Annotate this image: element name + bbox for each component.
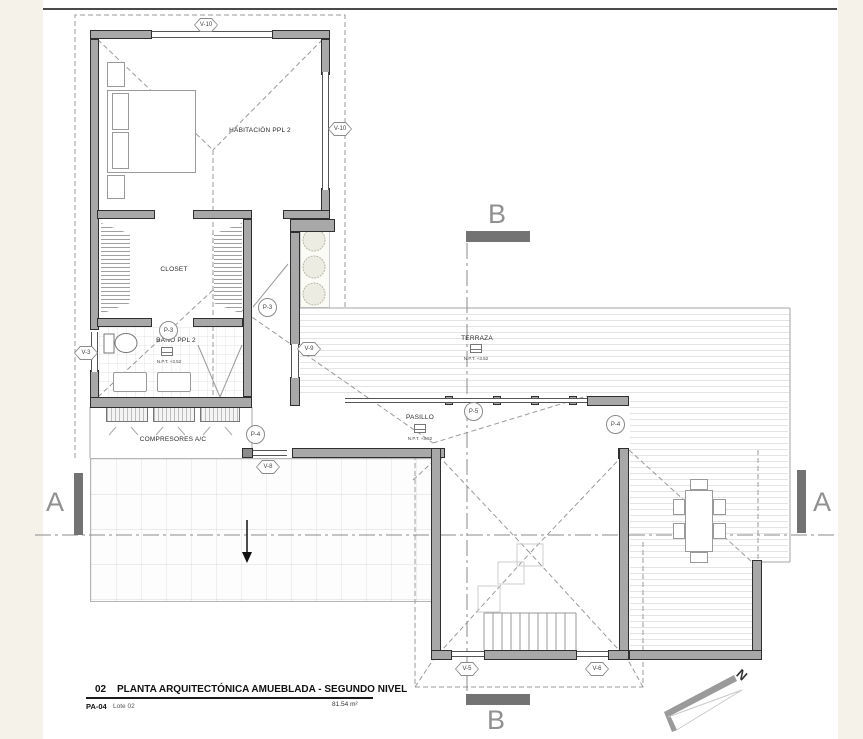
window-v10-right <box>322 72 329 190</box>
wall-segment <box>97 210 155 219</box>
section-b-bar-bottom <box>466 694 530 705</box>
window-v8 <box>253 450 287 456</box>
wall-segment <box>752 560 762 660</box>
wall-segment <box>97 318 152 327</box>
section-a-letter-right: A <box>813 487 831 518</box>
section-b-bar-top <box>466 231 530 242</box>
wall-segment <box>484 650 577 660</box>
sink <box>113 372 147 392</box>
corridor-glazing <box>345 398 587 403</box>
drawing-number: 02 <box>95 684 106 695</box>
roof-slope-arrow-icon <box>242 520 252 563</box>
ac-compressor-unit <box>200 407 240 422</box>
door-callout-p3-hall: P-3 <box>258 298 277 317</box>
wall-segment <box>290 219 335 232</box>
wall-segment <box>431 448 441 660</box>
sheet-number: PA-04 <box>86 702 107 711</box>
lot-label: Lote 02 <box>113 703 135 710</box>
level-marker-bano <box>161 347 173 356</box>
room-label-pasillo: PASILLO <box>390 414 450 421</box>
section-b-letter-top: B <box>488 199 506 230</box>
floor-plan-sheet: HABITACIÓN PPL 2 CLOSET BAÑO PPL 2 N.P.T… <box>0 0 863 739</box>
room-label-terraza: TERRAZA <box>442 335 512 342</box>
room-label-habitacion: HABITACIÓN PPL 2 <box>215 127 305 134</box>
dining-table <box>685 490 713 552</box>
level-text-bano: N.P.T. +3.52 <box>144 359 194 364</box>
wall-segment <box>290 232 300 345</box>
dining-chair <box>690 552 708 563</box>
wall-segment <box>193 210 252 219</box>
door-callout-p5: P-5 <box>464 402 483 421</box>
wall-segment <box>321 39 330 75</box>
wardrobe <box>214 223 242 314</box>
section-a-bar-left <box>74 473 83 535</box>
wall-segment <box>193 318 243 327</box>
pillow <box>112 132 129 169</box>
north-arrow-icon: N <box>650 658 770 738</box>
wardrobe <box>101 223 130 314</box>
dining-chair <box>690 479 708 490</box>
wall-segment <box>90 39 99 330</box>
door-callout-p4-right: P-4 <box>606 415 625 434</box>
room-label-compresores: COMPRESORES A/C <box>123 436 223 443</box>
dining-chair <box>673 523 685 539</box>
window-v6 <box>577 651 608 657</box>
level-marker-pasillo <box>414 424 426 433</box>
nightstand <box>107 62 125 87</box>
stairs <box>484 613 576 650</box>
pillow <box>112 93 129 130</box>
wall-segment <box>243 219 252 397</box>
ac-compressor-unit <box>106 407 148 422</box>
dining-chair <box>713 523 726 539</box>
nightstand <box>107 175 125 199</box>
section-a-bar-right <box>797 470 806 533</box>
ac-airflow-ticks <box>109 427 232 435</box>
drawing-title: PLANTA ARQUITECTÓNICA AMUEBLADA - SEGUND… <box>117 684 407 695</box>
wall-segment <box>90 30 152 39</box>
level-marker-terraza <box>470 344 482 353</box>
room-label-closet: CLOSET <box>149 266 199 273</box>
room-label-bano: BAÑO PPL 2 <box>146 337 206 344</box>
level-text-terraza: N.P.T. +3.52 <box>448 356 504 361</box>
window-v10-top <box>152 31 272 38</box>
wall-segment <box>619 448 629 660</box>
wall-segment <box>431 650 452 660</box>
door-callout-p3-bath: P-3 <box>159 321 178 340</box>
section-b-letter-bottom: B <box>487 705 505 736</box>
door-callout-p4-left: P-4 <box>246 425 265 444</box>
dining-chair <box>713 499 726 515</box>
section-a-letter-left: A <box>46 487 64 518</box>
wall-column <box>242 448 253 458</box>
level-text-pasillo: N.P.T. +3.52 <box>392 436 448 441</box>
area-value: 81.54 m² <box>332 701 358 708</box>
wall-segment <box>608 650 629 660</box>
wall-segment <box>290 377 300 406</box>
wall-segment <box>292 448 445 458</box>
wall-segment <box>587 396 629 406</box>
sink <box>157 372 191 392</box>
window-v5 <box>452 651 484 657</box>
wall-segment <box>90 397 252 408</box>
toilet <box>104 334 137 354</box>
wall-segment <box>272 30 330 39</box>
ac-compressor-unit <box>153 407 195 422</box>
wall-segment <box>283 210 330 219</box>
dining-chair <box>673 499 685 515</box>
interior-outlines <box>478 544 543 612</box>
title-underline <box>86 697 373 699</box>
plant-icons <box>303 229 325 305</box>
